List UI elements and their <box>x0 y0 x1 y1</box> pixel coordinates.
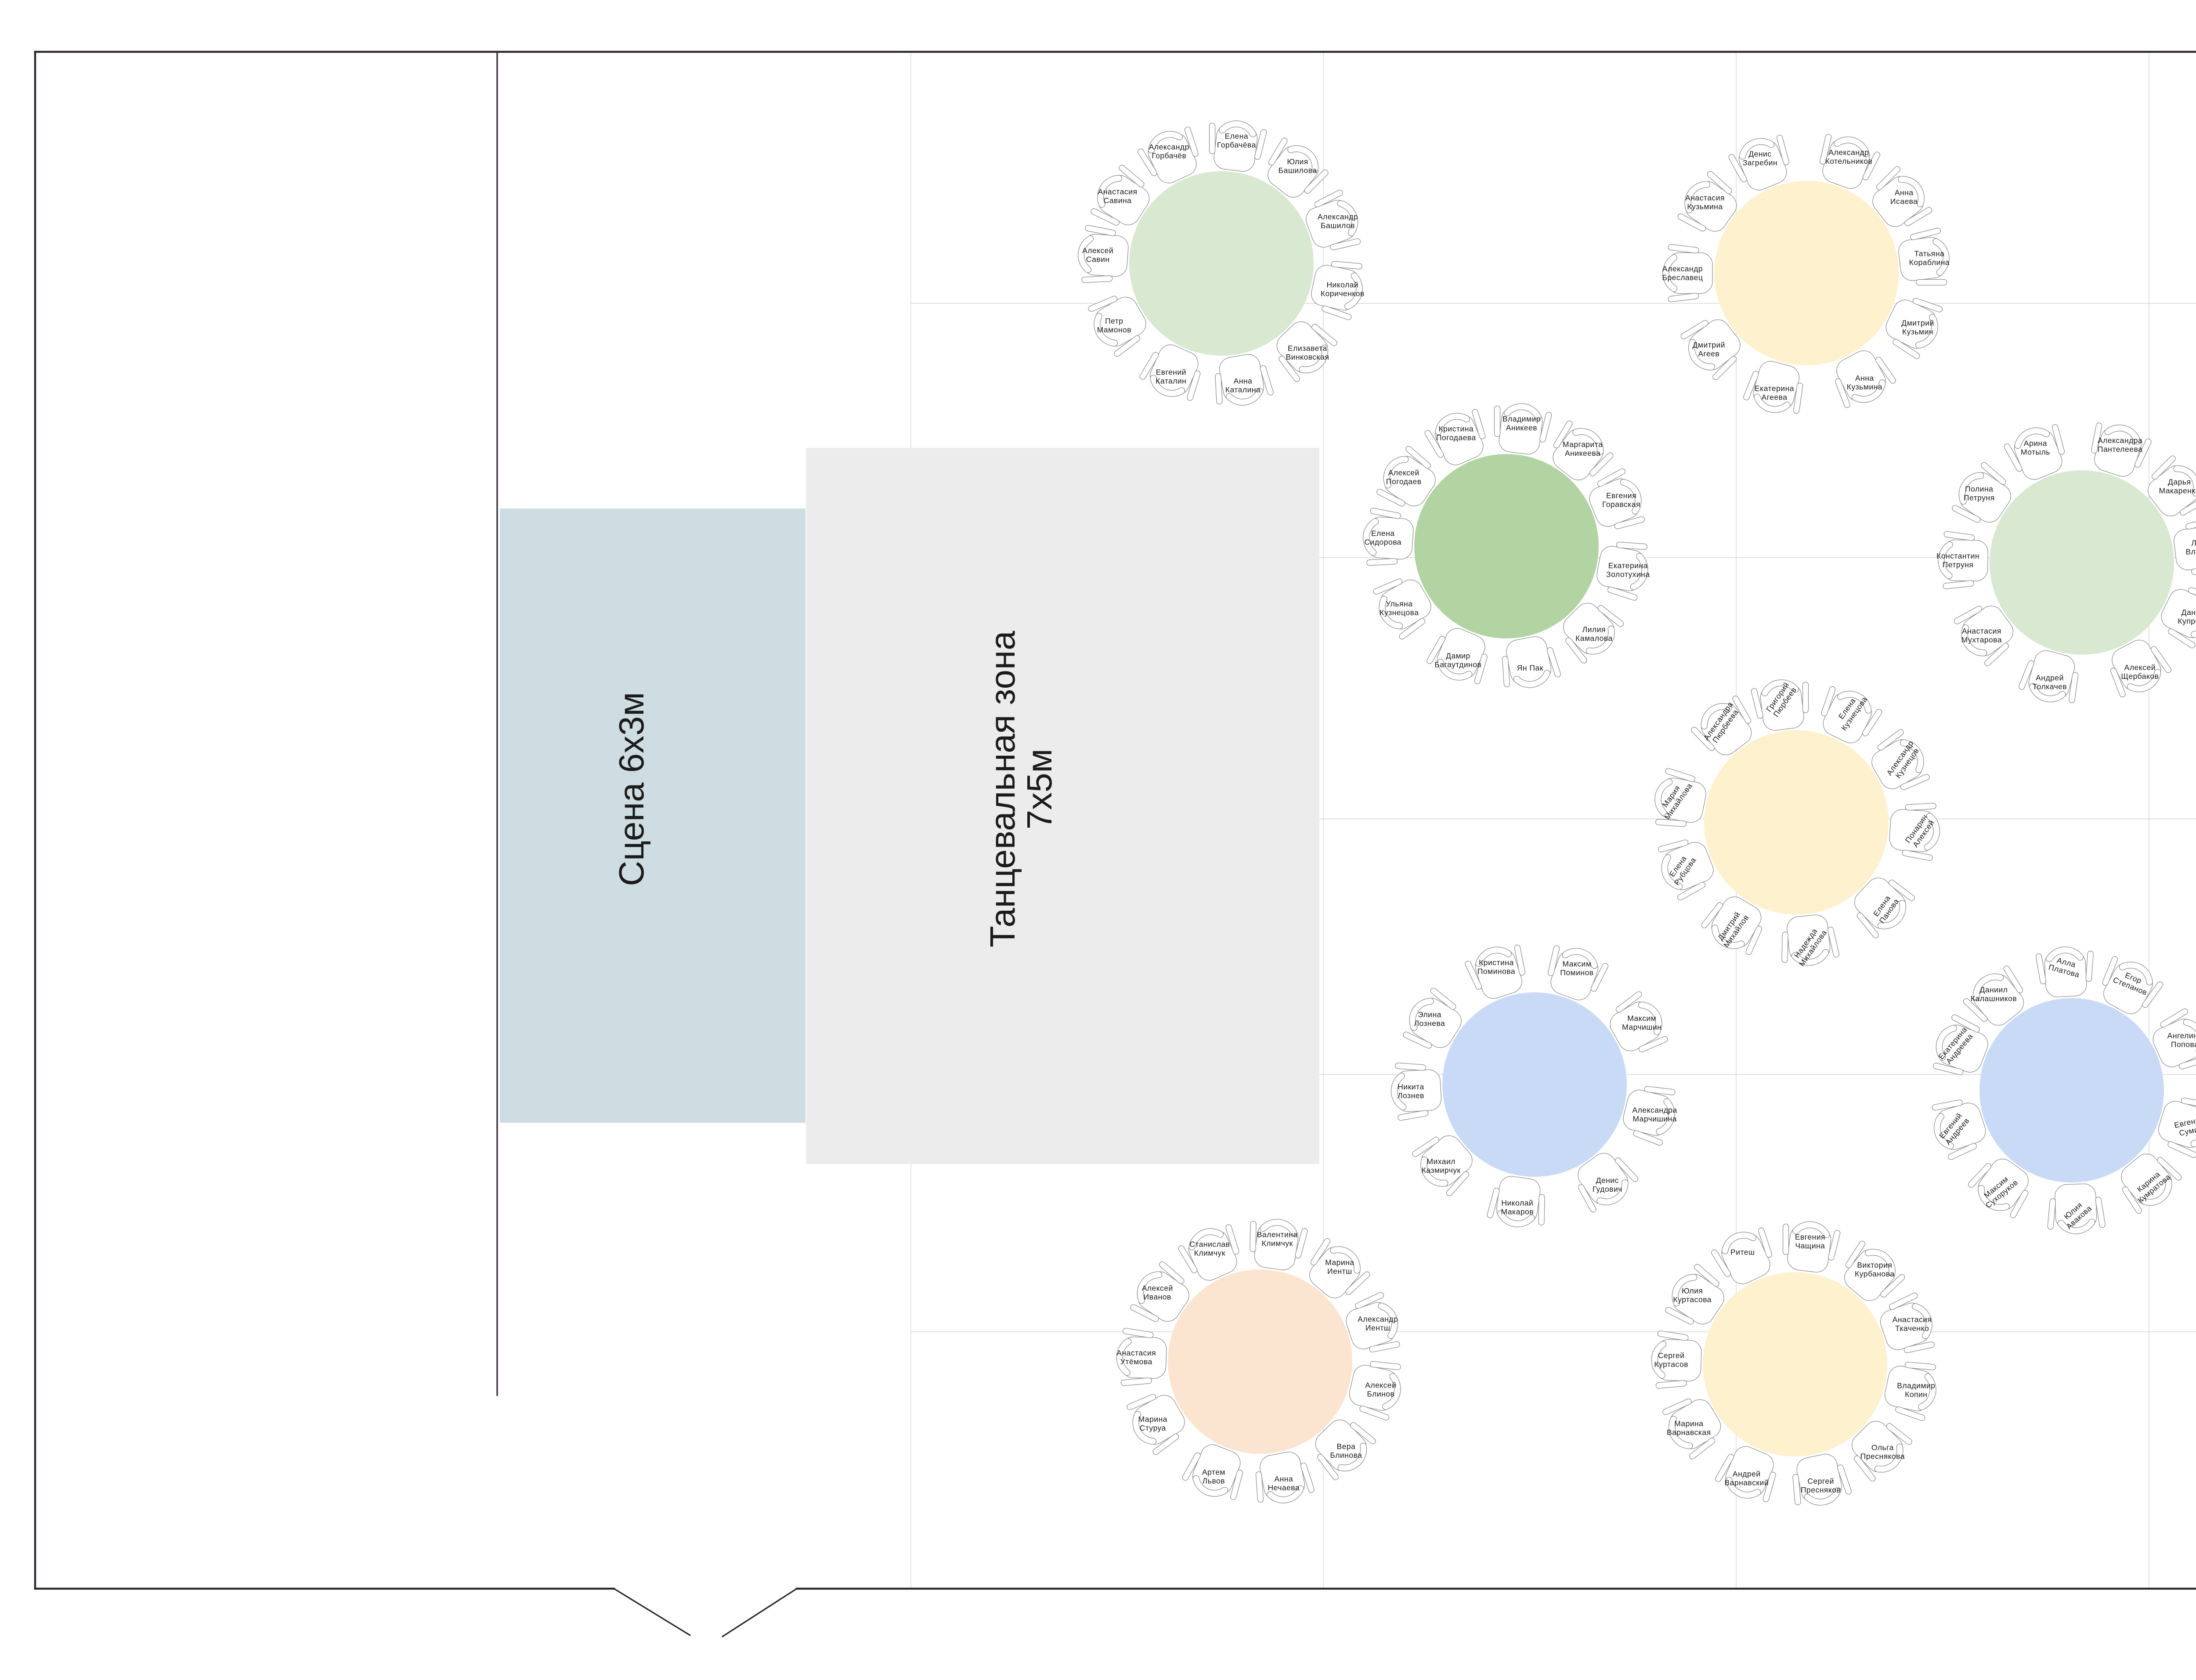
svg-text:МаргаритаАникеева: МаргаритаАникеева <box>1563 440 1603 458</box>
svg-text:ДенисГудович: ДенисГудович <box>1593 1176 1622 1193</box>
svg-text:ЕвгенияГоравская: ЕвгенияГоравская <box>1602 491 1640 508</box>
svg-text:МаксимМарчишин: МаксимМарчишин <box>1622 1014 1661 1031</box>
svg-text:Ян Пак: Ян Пак <box>1517 663 1543 672</box>
svg-text:АлександрБреславец: АлександрБреславец <box>1662 264 1703 282</box>
svg-text:АлексейЩербаков: АлексейЩербаков <box>2121 663 2159 681</box>
svg-text:Сцена 6х3м: Сцена 6х3м <box>612 692 651 886</box>
svg-text:АлексейСавин: АлексейСавин <box>1082 246 1113 263</box>
svg-text:ЕвгенияЧащина: ЕвгенияЧащина <box>1795 1233 1825 1250</box>
svg-text:НиколайМакаров: НиколайМакаров <box>1501 1198 1534 1216</box>
svg-text:МихаилКазмирчук: МихаилКазмирчук <box>1422 1157 1461 1175</box>
svg-text:АнастасияМухтарова: АнастасияМухтарова <box>1961 627 2002 644</box>
svg-text:ЕкатеринаЗолотухина: ЕкатеринаЗолотухина <box>1606 561 1650 579</box>
svg-text:АлексейБлинов: АлексейБлинов <box>1365 1381 1396 1398</box>
svg-text:АлександраПантелеева: АлександраПантелеева <box>2098 436 2142 454</box>
svg-text:АнастасияТкаченко: АнастасияТкаченко <box>1893 1315 1932 1333</box>
svg-text:НикитаЛознев: НикитаЛознев <box>1398 1082 1424 1100</box>
svg-text:НиколайКориченков: НиколайКориченков <box>1321 281 1365 298</box>
svg-text:АндрейТолкачев: АндрейТолкачев <box>2033 673 2067 691</box>
svg-text:МаксимПоминов: МаксимПоминов <box>1560 959 1593 977</box>
svg-text:КонстантинПетруня: КонстантинПетруня <box>1936 552 1979 569</box>
svg-text:АнастасияСавина: АнастасияСавина <box>1098 187 1138 205</box>
svg-text:ЕлизаветаВинковская: ЕлизаветаВинковская <box>1286 344 1329 361</box>
svg-text:ДмитрийКузьмин: ДмитрийКузьмин <box>1901 319 1934 336</box>
svg-text:ТатьянаКораблина: ТатьянаКораблина <box>1909 249 1950 267</box>
svg-text:АлександрБашилов: АлександрБашилов <box>1318 213 1358 230</box>
svg-text:АлексейПогодаев: АлексейПогодаев <box>1386 468 1422 486</box>
svg-text:АнастасияКузьмина: АнастасияКузьмина <box>1685 193 1725 211</box>
svg-text:Ритеш: Ритеш <box>1730 1247 1755 1256</box>
svg-text:МаринаИентш: МаринаИентш <box>1325 1258 1354 1276</box>
svg-text:АнгелинаПопова: АнгелинаПопова <box>2167 1031 2196 1049</box>
svg-text:КристинаПоминова: КристинаПоминова <box>1477 958 1515 976</box>
svg-text:ВладимирАникеев: ВладимирАникеев <box>1503 415 1541 432</box>
svg-text:АринаМотыль: АринаМотыль <box>2021 439 2050 457</box>
svg-text:АлександрКотельников: АлександрКотельников <box>1825 148 1873 166</box>
svg-text:АртемЛьвов: АртемЛьвов <box>1202 1468 1225 1485</box>
svg-text:СтаниславКлимчук: СтаниславКлимчук <box>1189 1240 1230 1257</box>
svg-text:КристинаПогодаева: КристинаПогодаева <box>1436 424 1476 442</box>
svg-text:МаринаСтуруа: МаринаСтуруа <box>1138 1415 1167 1432</box>
svg-text:ВикторияКурбанова: ВикторияКурбанова <box>1855 1261 1895 1278</box>
svg-text:ЕвгенийКаталин: ЕвгенийКаталин <box>1156 368 1186 386</box>
svg-text:АлексейИванов: АлексейИванов <box>1142 1283 1173 1301</box>
svg-text:ПолинаПетруня: ПолинаПетруня <box>1964 484 1995 502</box>
svg-text:АлександраМарчишина: АлександраМарчишина <box>1632 1106 1677 1123</box>
svg-text:ВалентинаКлимчук: ВалентинаКлимчук <box>1257 1230 1298 1248</box>
svg-text:АнастасияУтёмова: АнастасияУтёмова <box>1116 1348 1156 1366</box>
svg-text:СергейКуртасов: СергейКуртасов <box>1654 1351 1688 1369</box>
svg-text:АлександрГорбачёв: АлександрГорбачёв <box>1149 142 1189 160</box>
svg-text:ЭлинаЛознева: ЭлинаЛознева <box>1414 1010 1445 1028</box>
